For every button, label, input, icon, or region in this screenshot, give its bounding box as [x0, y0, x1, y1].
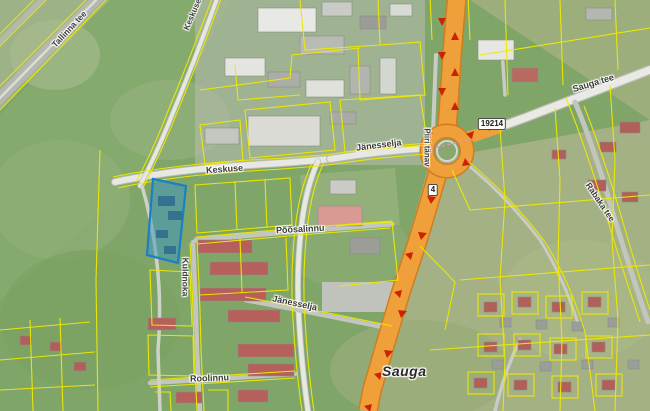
map-canvas[interactable]: Tallinna tee Keskuse Keskuse Jänesselja …	[0, 0, 650, 411]
highlighted-parcel[interactable]	[147, 179, 186, 263]
orthophoto-layer	[0, 0, 650, 411]
